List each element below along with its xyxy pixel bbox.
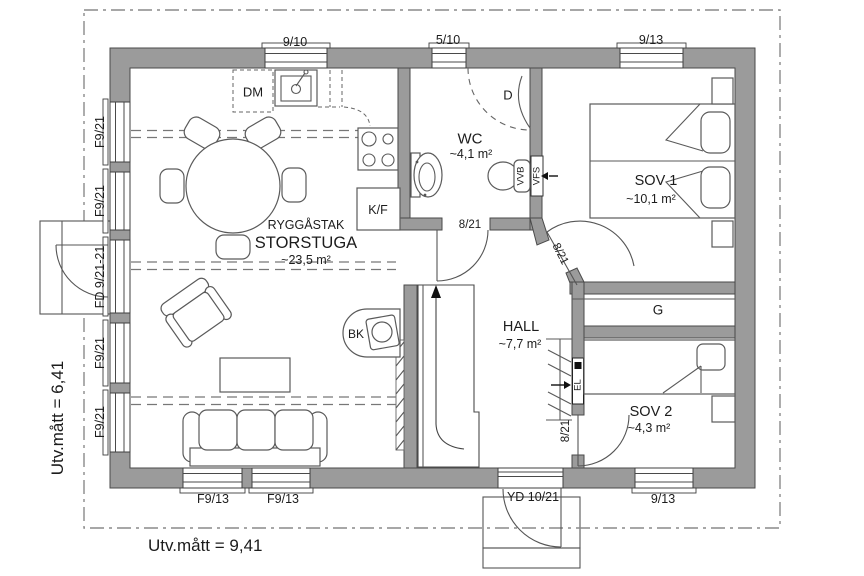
floor-plan-drawing: 9/10 5/10 9/13 F9/21 F9/21 FD 9/21-21 F9… (0, 0, 864, 576)
window-left-2 (103, 169, 130, 233)
wc-door (437, 230, 488, 281)
armchair (157, 275, 233, 349)
entry-steps (483, 497, 580, 568)
label-outer-width: Utv.mått = 9,41 (148, 536, 262, 555)
label-wc-area: ~4,1 m² (450, 147, 493, 161)
label-hall-area: ~7,7 m² (499, 337, 542, 351)
label-entry-door: YD 10/21 (507, 490, 559, 504)
stove (358, 128, 398, 170)
floor-plan-page: 9/10 5/10 9/13 F9/21 F9/21 FD 9/21-21 F9… (0, 0, 864, 576)
entry-door (498, 468, 563, 547)
shower-screen (518, 76, 530, 128)
label-closet: G (653, 303, 664, 318)
window-bottom-2 (249, 468, 313, 493)
sov2-door (578, 415, 629, 466)
label-left-door: FD 9/21-21 (93, 246, 107, 309)
stairs (418, 285, 479, 467)
label-ridge: RYGGÅSTAK (268, 217, 345, 232)
window-left-1 (103, 99, 130, 165)
sofa (183, 410, 327, 466)
label-dishwasher: DM (243, 85, 263, 100)
label-sov1-door: 8/21 (550, 241, 571, 266)
label-wc: WC (458, 131, 483, 148)
label-wc-door: 8/21 (459, 219, 481, 231)
label-bottom-window-2: F9/13 (267, 492, 299, 506)
label-left-window-3: F9/21 (93, 337, 107, 369)
counter-edge (318, 70, 370, 126)
window-bottom-1 (180, 468, 245, 493)
label-top-window-3: 9/13 (639, 33, 663, 47)
window-left-3 (103, 320, 130, 386)
label-left-window-2: F9/21 (93, 185, 107, 217)
label-sov2: SOV 2 (630, 404, 673, 420)
label-top-window-1: 9/10 (283, 35, 307, 49)
label-outer-height: Utv.mått = 6,41 (48, 361, 67, 475)
window-bottom-3 (632, 468, 696, 493)
label-shower: D (503, 88, 512, 103)
label-bottom-window-3: 9/13 (651, 492, 675, 506)
label-bottom-window-1: F9/13 (197, 492, 229, 506)
label-left-window-4: F9/21 (93, 406, 107, 438)
window-left-4 (103, 390, 130, 455)
label-sov2-door: 8/21 (560, 420, 572, 442)
label-top-window-2: 5/10 (436, 33, 460, 47)
label-sov1-area: ~10,1 m² (626, 192, 676, 206)
label-ventilation: VFS (532, 167, 543, 185)
label-sov2-area: ~4,3 m² (628, 421, 671, 435)
label-electrical: EL (573, 379, 584, 391)
shower-curtain (468, 68, 530, 130)
label-storstuga: STORSTUGA (255, 234, 357, 252)
label-wood-stove: BK (348, 327, 364, 341)
label-hall: HALL (503, 319, 539, 335)
coffee-table (220, 358, 290, 392)
label-storstuga-area: ~23,5 m² (281, 253, 331, 267)
label-fridge-freezer: K/F (368, 203, 388, 217)
label-sov1: SOV 1 (635, 173, 678, 189)
washbasin (411, 153, 442, 197)
sov1-furniture (590, 78, 735, 247)
label-left-window-1: F9/21 (93, 116, 107, 148)
label-water-heater: VVB (516, 166, 527, 185)
kitchen-sink (275, 70, 317, 106)
coat-rack (546, 339, 572, 420)
